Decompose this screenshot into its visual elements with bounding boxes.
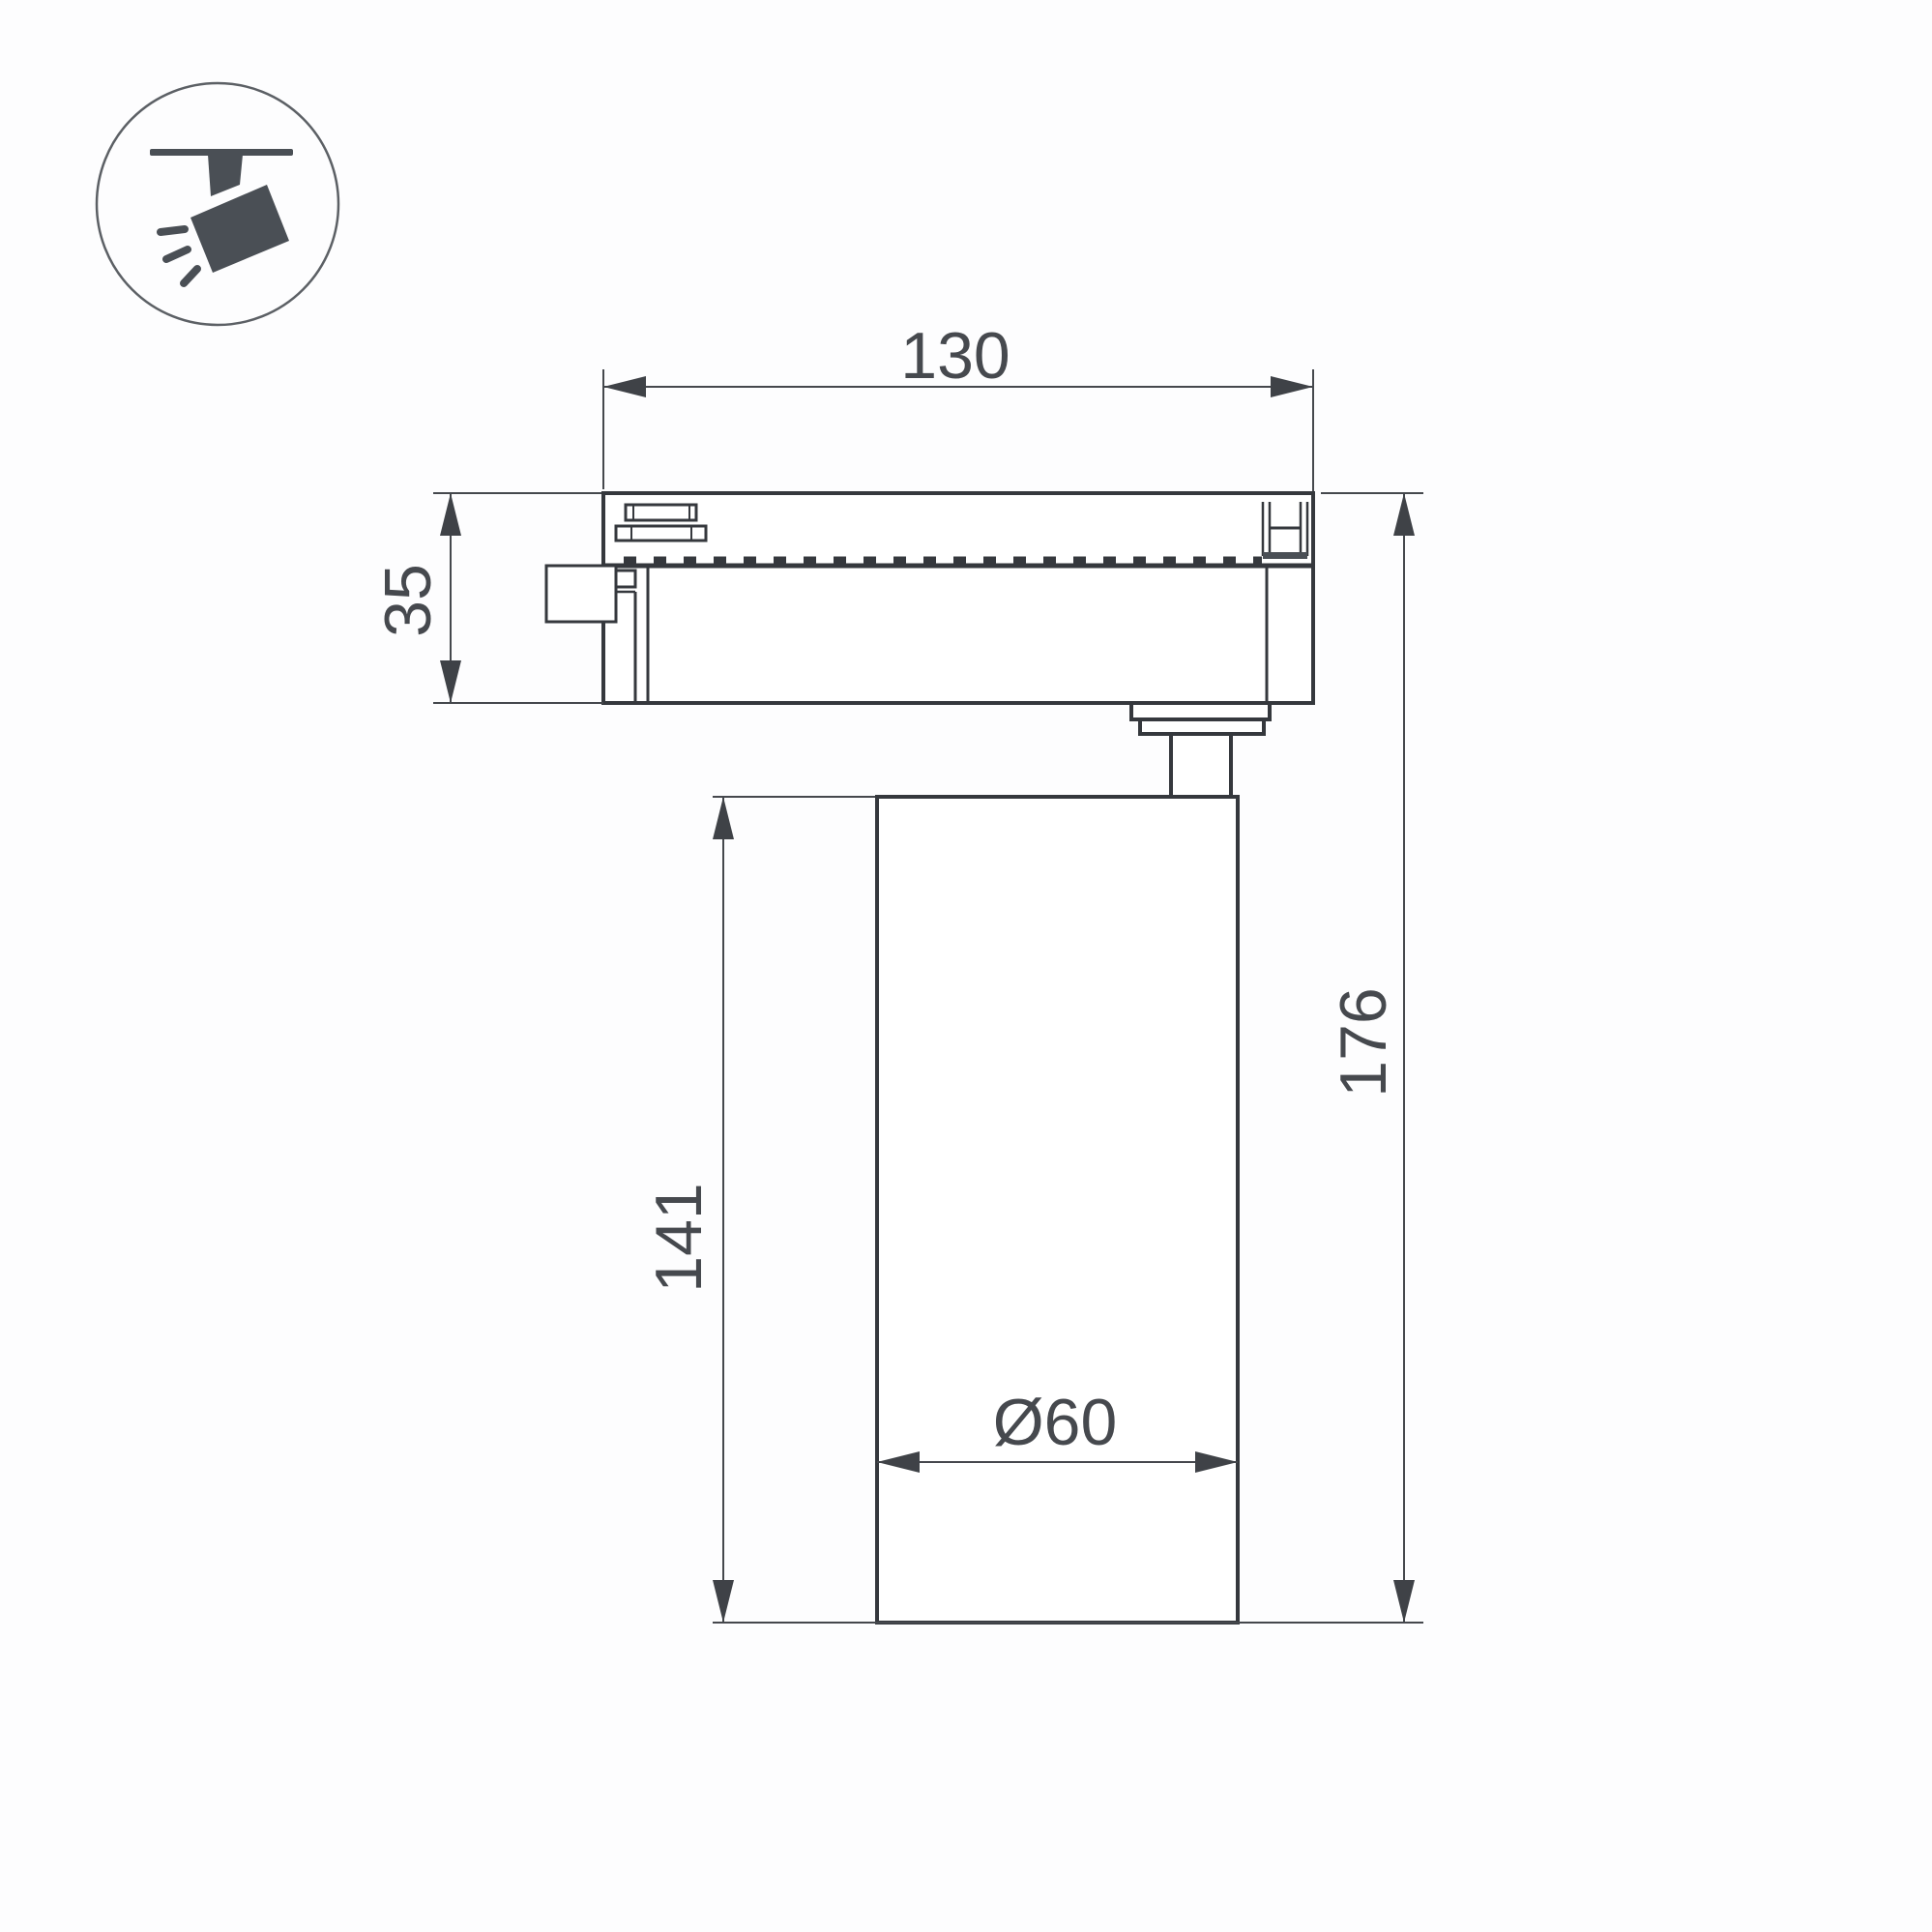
- dim-label-130: 130: [900, 319, 1010, 393]
- adapter-contact-upper: [626, 505, 696, 520]
- icon-light-ray-1: [161, 229, 185, 232]
- dim-label-176: 176: [1327, 987, 1400, 1097]
- arrowhead-right: [1271, 376, 1313, 397]
- arrowhead-left: [603, 376, 646, 397]
- icon-circle-border: [97, 83, 338, 325]
- arrowhead-down: [440, 660, 461, 703]
- track-adapter: [546, 493, 1313, 703]
- dim-label-35: 35: [371, 564, 445, 637]
- adapter-contact-lower: [616, 526, 706, 541]
- dim-label-diameter-60: Ø60: [993, 1386, 1118, 1459]
- dim-total-height-176: 176: [1321, 493, 1423, 1623]
- lamp-body: [877, 797, 1238, 1623]
- arrowhead-down: [713, 1580, 734, 1623]
- joint-step-2: [1140, 719, 1264, 734]
- track-spotlight-icon: [97, 83, 338, 325]
- dim-label-141: 141: [642, 1183, 716, 1292]
- dim-track-width-130: 130: [603, 319, 1313, 491]
- adapter-outer-body: [603, 493, 1313, 703]
- arrowhead-up: [713, 797, 734, 839]
- product-dimension-drawing: 130 35 141 176 Ø60: [0, 0, 1932, 1932]
- arrowhead-up: [440, 493, 461, 536]
- icon-track-bar: [150, 149, 293, 156]
- mounting-joint: [1131, 703, 1270, 797]
- joint-step-1: [1131, 703, 1270, 719]
- arrowhead-up: [1393, 493, 1415, 536]
- dim-body-height-141: 141: [642, 797, 875, 1623]
- dimension-drawing-page: 130 35 141 176 Ø60: [0, 0, 1932, 1932]
- joint-stem: [1171, 734, 1231, 797]
- arrowhead-down: [1393, 1580, 1415, 1623]
